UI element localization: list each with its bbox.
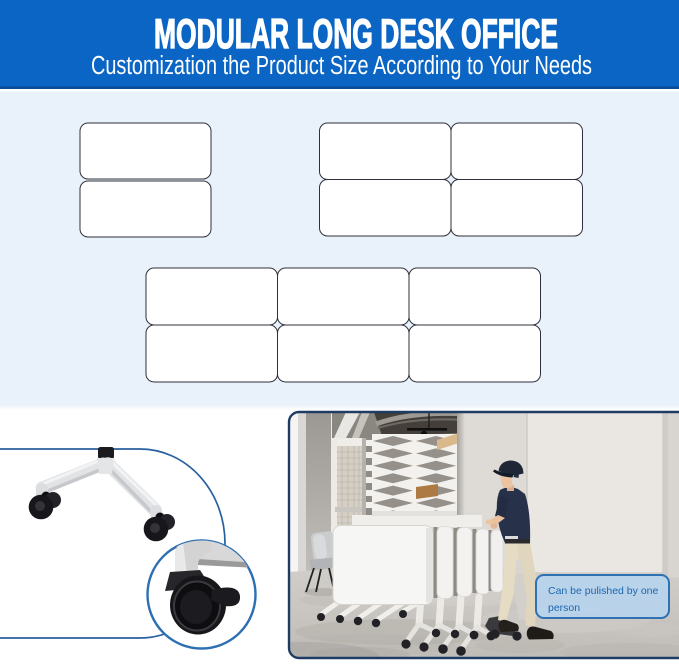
svg-text:Can be pulished by one: Can be pulished by one <box>548 585 658 597</box>
svg-text:Customization the Product Size: Customization the Product Size According… <box>91 52 592 80</box>
svg-text:MODULAR LONG DESK OFFICE: MODULAR LONG DESK OFFICE <box>154 10 558 57</box>
svg-text:person: person <box>548 602 580 614</box>
